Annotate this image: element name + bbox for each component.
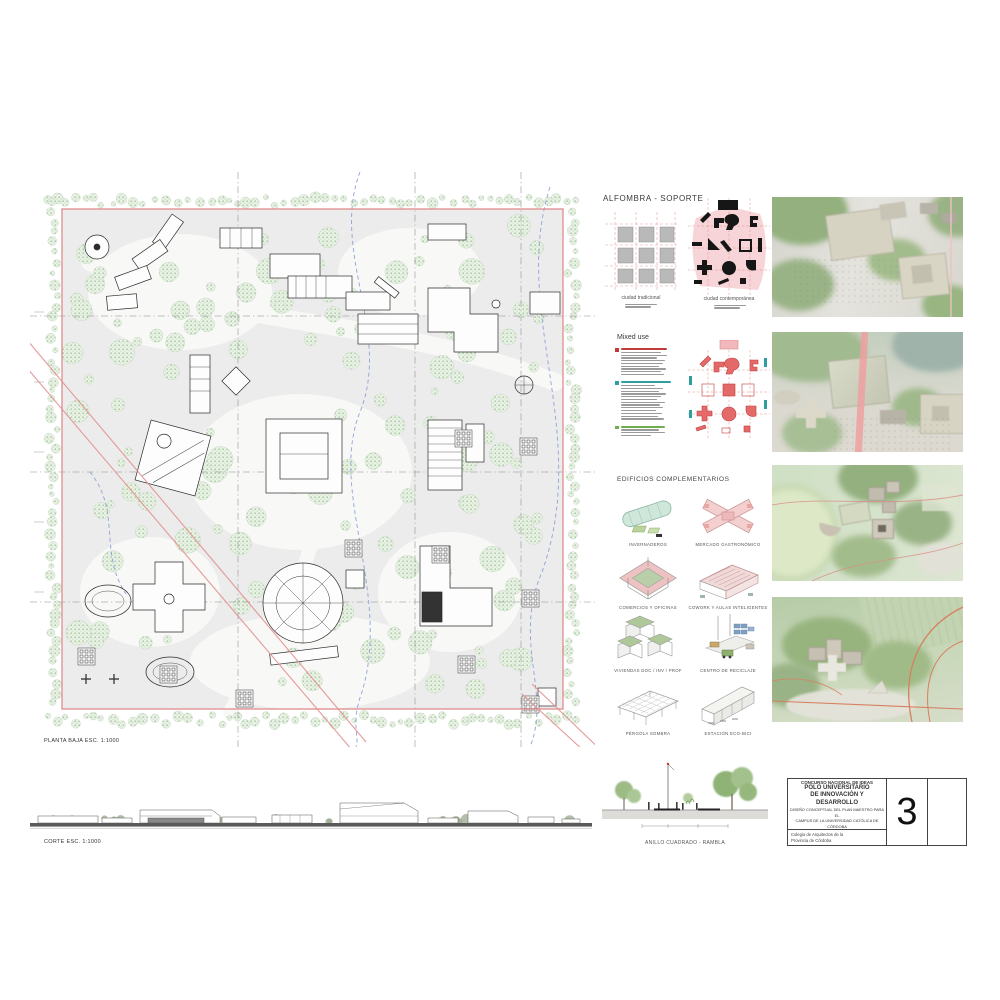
tree-canopy <box>278 678 286 686</box>
tree-canopy <box>462 196 469 203</box>
complementario-cowork: COWORK Y AULAS INTELIGENTES <box>688 549 768 612</box>
tree-canopy <box>50 593 57 600</box>
tree-canopy <box>47 208 55 216</box>
tree-canopy <box>511 458 521 468</box>
corte-ground <box>30 823 592 827</box>
tree-canopy <box>311 718 321 728</box>
tree-canopy <box>490 443 514 467</box>
tree-canopy <box>336 327 345 336</box>
organizer-line2: Provincia de Córdoba <box>791 838 883 844</box>
tree-canopy <box>477 658 488 669</box>
tree-canopy <box>233 597 250 614</box>
tree-canopy <box>274 301 285 312</box>
tree-canopy <box>84 374 94 384</box>
tree-canopy <box>332 195 339 202</box>
tree-canopy <box>568 584 576 592</box>
tree-canopy <box>500 329 516 345</box>
tree-canopy <box>164 364 180 380</box>
tree-canopy <box>567 561 576 570</box>
tree-canopy <box>569 681 575 687</box>
render-paths <box>772 597 963 722</box>
tree-canopy <box>47 517 57 527</box>
render-building <box>806 398 816 428</box>
complementario-viviendas: VIVIENDAS DOC / INV / PROF <box>608 612 688 675</box>
pavilion <box>522 696 539 713</box>
tree-canopy <box>572 543 578 549</box>
tree-canopy <box>229 532 251 554</box>
tree-canopy <box>563 669 571 677</box>
pavilion <box>345 540 362 557</box>
pavilion <box>78 648 95 665</box>
tree-canopy <box>569 258 580 269</box>
tree-canopy <box>52 583 62 593</box>
competition-line3: DE INNOVACIÓN Y DESARROLLO <box>790 792 884 807</box>
tree-canopy <box>565 425 575 435</box>
tree-canopy <box>479 196 484 201</box>
tree-canopy <box>504 194 514 204</box>
tree-canopy <box>113 319 121 327</box>
tree-canopy <box>390 722 396 728</box>
tree-canopy <box>111 201 116 206</box>
tree-canopy <box>568 530 577 539</box>
tree-canopy <box>341 521 351 531</box>
tree-canopy <box>318 227 338 247</box>
tree-canopy <box>209 198 217 206</box>
corte-buildings <box>38 803 580 823</box>
pergola-icon <box>614 679 682 729</box>
tree-canopy <box>46 333 56 343</box>
tree-canopy <box>163 635 171 643</box>
legend-green-swatch <box>615 426 619 430</box>
tree-canopy <box>526 194 532 200</box>
tree-canopy <box>569 237 577 245</box>
tree-canopy <box>567 347 574 354</box>
tree-canopy <box>361 198 368 205</box>
tree-canopy <box>45 461 56 472</box>
tree-canopy <box>66 620 91 645</box>
tree-canopy <box>563 690 572 699</box>
tree-canopy <box>118 721 126 729</box>
tree-canopy <box>48 509 56 517</box>
tree-canopy <box>438 712 446 720</box>
tree-canopy <box>425 674 444 693</box>
tree-canopy <box>171 301 190 320</box>
tree-canopy <box>241 719 251 729</box>
tree-canopy <box>374 394 387 407</box>
tree-canopy <box>573 197 579 203</box>
tree-canopy <box>370 717 377 724</box>
tree-canopy <box>218 196 227 205</box>
tree-canopy <box>45 412 56 423</box>
tree-canopy <box>174 199 182 207</box>
tree-canopy <box>185 197 191 203</box>
tree-canopy <box>52 326 58 332</box>
tree-canopy <box>415 713 426 724</box>
tree-canopy <box>404 718 413 727</box>
viviendas-icon <box>616 614 680 666</box>
tree-canopy <box>49 387 54 392</box>
corte-section-drawing <box>30 792 592 836</box>
title-block: CONCURSO NACIONAL DE IDEAS POLO UNIVERSI… <box>787 778 967 846</box>
tree-canopy <box>48 198 56 206</box>
tree-canopy <box>415 256 425 266</box>
tree-canopy <box>52 680 61 689</box>
complementario-mercado: MERCADO GASTRONÓMICO <box>688 486 768 549</box>
complementario-ecobici: ESTACIÓN ECO-BICI <box>688 675 768 738</box>
tree-canopy <box>564 324 573 333</box>
tree-canopy <box>89 193 98 202</box>
tree-canopy <box>71 300 92 321</box>
render-building <box>774 390 800 405</box>
board-number: 3 <box>896 791 917 834</box>
tree-canopy <box>199 316 215 332</box>
tree-canopy <box>49 541 58 550</box>
tree-canopy <box>240 197 251 208</box>
tree-canopy <box>388 627 401 640</box>
tree-canopy <box>61 342 83 364</box>
tree-canopy <box>47 454 53 460</box>
tree-canopy <box>51 219 59 227</box>
legend-teal-swatch <box>615 381 619 385</box>
tree-canopy <box>480 546 506 572</box>
tree-canopy <box>564 269 572 277</box>
board-number-cell: 3 <box>887 779 928 845</box>
mixed-use-diagram <box>688 340 770 440</box>
tree-canopy <box>48 359 55 366</box>
tree-canopy <box>507 214 530 237</box>
competition-title: CONCURSO NACIONAL DE IDEAS POLO UNIVERSI… <box>788 779 886 830</box>
tree-canopy <box>49 668 58 677</box>
tree-canopy <box>530 241 544 255</box>
tree-canopy <box>51 689 62 700</box>
complementario-invernaderos: INVERNADEROS <box>608 486 688 549</box>
alfombra-left-caption: ciudad tradicional <box>600 295 682 301</box>
tree-canopy <box>225 312 240 327</box>
tree-canopy <box>562 711 572 721</box>
tree-canopy <box>197 720 204 727</box>
tree-canopy <box>48 237 57 246</box>
cowork-icon <box>694 553 762 603</box>
tree-canopy <box>53 347 59 353</box>
tree-canopy <box>83 195 89 201</box>
tree-canopy <box>325 306 341 322</box>
tree-canopy <box>271 202 278 209</box>
tree-canopy <box>49 657 57 665</box>
tree-canopy <box>513 719 522 728</box>
tree-canopy <box>116 193 127 204</box>
tree-canopy <box>48 484 53 489</box>
tree-canopy <box>139 636 152 649</box>
tree-canopy <box>566 366 575 375</box>
tree-canopy <box>468 714 477 723</box>
complementarios-grid: INVERNADEROS MERCADO GASTRONÓMICO <box>608 486 768 738</box>
tree-canopy <box>50 271 55 276</box>
tree-canopy <box>235 201 241 207</box>
alfombra-left-subtext <box>625 302 657 308</box>
tree-canopy <box>117 459 125 467</box>
tree-canopy <box>49 563 54 568</box>
tree-canopy <box>396 556 419 579</box>
tree-canopy <box>53 260 61 268</box>
tree-canopy <box>571 508 580 517</box>
tree-canopy <box>304 333 317 346</box>
tree-canopy <box>385 261 408 284</box>
tree-canopy <box>491 394 509 412</box>
tree-canopy <box>499 649 517 667</box>
render-people-speckle <box>792 257 902 307</box>
tree-canopy <box>184 318 200 334</box>
tree-canopy <box>53 498 59 504</box>
reciclaje-icon <box>696 614 760 666</box>
tree-canopy <box>378 537 393 552</box>
tree-canopy <box>262 712 269 719</box>
tree-canopy <box>565 200 570 205</box>
corte-scale-label: CORTE ESC. 1:1000 <box>44 839 101 845</box>
tree-canopy <box>72 193 81 202</box>
tree-canopy <box>396 200 405 209</box>
tree-canopy <box>44 529 55 540</box>
tree-canopy <box>49 492 54 497</box>
aerial-render-3 <box>772 465 963 581</box>
tree-canopy <box>566 473 574 481</box>
tree-canopy <box>534 198 544 208</box>
tree-canopy <box>370 195 377 202</box>
tree-canopy <box>398 719 403 724</box>
tree-canopy <box>159 262 179 282</box>
alfombra-right-caption: ciudad contemporánea <box>688 296 770 302</box>
tree-canopy <box>427 198 438 209</box>
tree-canopy <box>574 293 580 299</box>
tree-canopy <box>573 519 579 525</box>
tree-canopy <box>109 339 135 365</box>
tree-canopy <box>569 452 580 463</box>
tree-canopy <box>343 352 360 369</box>
tree-canopy <box>361 639 385 663</box>
tree-canopy <box>209 712 216 719</box>
tree-canopy <box>572 619 580 627</box>
pavilion <box>522 590 539 607</box>
tree-canopy <box>430 355 454 379</box>
tree-canopy <box>568 491 574 497</box>
mercado-icon <box>696 494 760 540</box>
tree-canopy <box>300 712 308 720</box>
tree-canopy <box>551 715 561 725</box>
title-block-empty-cell <box>928 779 966 845</box>
tree-canopy <box>567 336 573 342</box>
tree-canopy <box>124 448 132 456</box>
tree-canopy <box>569 463 575 469</box>
alfombra-shapes-diagram <box>688 198 770 296</box>
tree-canopy <box>573 249 578 254</box>
tree-canopy <box>466 679 485 698</box>
tree-canopy <box>263 195 268 200</box>
tree-canopy <box>48 378 58 388</box>
tree-canopy <box>572 716 579 723</box>
tree-canopy <box>451 371 464 384</box>
tree-canopy <box>161 196 170 205</box>
tree-canopy <box>405 200 412 207</box>
tree-canopy <box>488 717 494 723</box>
tree-canopy <box>250 717 259 726</box>
tree-canopy <box>71 719 80 728</box>
tree-canopy <box>506 578 523 595</box>
tree-canopy <box>417 195 425 203</box>
tree-canopy <box>459 259 485 285</box>
tree-canopy <box>49 645 60 656</box>
tree-canopy <box>469 200 477 208</box>
tree-canopy <box>565 638 572 645</box>
tree-canopy <box>570 571 578 579</box>
tree-canopy <box>571 280 582 291</box>
tree-canopy <box>389 198 396 205</box>
site-plan-drawing <box>30 172 595 747</box>
aerial-render-1 <box>772 197 963 317</box>
tree-canopy <box>310 192 321 203</box>
tree-canopy <box>151 714 160 723</box>
tree-canopy <box>475 646 483 654</box>
aerial-render-4 <box>772 597 963 722</box>
street-section-caption: ANILLO CUADRADO - RAMBLA <box>602 840 768 846</box>
tree-canopy <box>526 713 532 719</box>
tree-canopy <box>428 630 437 639</box>
tree-canopy <box>570 434 579 443</box>
render-paths <box>772 465 963 581</box>
tree-canopy <box>504 720 514 730</box>
tree-canopy <box>45 570 55 580</box>
complementario-comercios: COMERCIOS Y OFICINAS <box>608 549 688 612</box>
tree-canopy <box>385 416 405 436</box>
tree-canopy <box>431 388 438 395</box>
tree-canopy <box>62 714 68 720</box>
tree-canopy <box>568 552 578 562</box>
tree-canopy <box>477 714 485 722</box>
tree-canopy <box>546 712 552 718</box>
tree-canopy <box>570 592 579 601</box>
tree-canopy <box>61 198 69 206</box>
alfombra-grid-diagram <box>605 212 677 292</box>
tree-canopy <box>449 719 459 729</box>
tree-canopy <box>128 717 137 726</box>
tree-canopy <box>250 198 259 207</box>
tree-canopy <box>49 472 58 481</box>
tree-canopy <box>568 208 576 216</box>
street-section-drawing <box>602 760 768 838</box>
tree-canopy <box>461 494 480 513</box>
tree-canopy <box>570 482 579 491</box>
tree-canopy <box>248 581 265 598</box>
competition-line5: CAMPUS DE LA UNIVERSIDAD CATÓLICA DE CÓR… <box>790 818 884 829</box>
tree-canopy <box>54 293 60 299</box>
tree-canopy <box>166 333 185 352</box>
tree-canopy <box>183 713 193 723</box>
tree-canopy <box>46 552 56 562</box>
comercios-icon <box>616 553 680 603</box>
tree-canopy <box>46 405 54 413</box>
tree-canopy <box>52 636 62 646</box>
tree-canopy <box>44 433 54 443</box>
pavilion <box>520 438 537 455</box>
tree-canopy <box>137 713 148 724</box>
tree-canopy <box>108 714 118 724</box>
tree-canopy <box>567 657 574 664</box>
competition-line4: DISEÑO CONCEPTUAL DEL PLAN MAESTRO PARA … <box>790 807 884 818</box>
tree-canopy <box>365 453 382 470</box>
tree-canopy <box>573 629 579 635</box>
render-building <box>942 213 956 223</box>
tree-canopy <box>514 515 534 535</box>
legend-group-red <box>615 348 687 375</box>
render-people-speckle <box>832 416 952 450</box>
tree-canopy <box>421 235 429 243</box>
tree-canopy <box>551 194 561 204</box>
tree-canopy <box>213 525 222 534</box>
tree-canopy <box>51 228 58 235</box>
tree-canopy <box>98 715 104 721</box>
tree-canopy <box>107 500 115 508</box>
render-courtyard <box>911 264 933 284</box>
tree-canopy <box>196 198 205 207</box>
tree-canopy <box>173 711 184 722</box>
tree-canopy <box>47 629 55 637</box>
tree-canopy <box>572 698 580 706</box>
complementario-pergola: PÉRGOLA SOMBRA <box>608 675 688 738</box>
tree-canopy <box>570 412 581 423</box>
tree-canopy <box>351 200 358 207</box>
mixed-use-legend <box>615 347 687 436</box>
tree-canopy <box>236 283 256 303</box>
tree-canopy <box>49 698 56 705</box>
tree-canopy <box>340 195 346 201</box>
tree-canopy <box>196 298 214 316</box>
tree-canopy <box>98 202 104 208</box>
tree-canopy <box>532 513 543 524</box>
legend-group-teal <box>615 381 687 419</box>
tree-canopy <box>571 303 581 313</box>
tree-canopy <box>450 200 457 207</box>
tree-canopy <box>378 196 385 203</box>
render-pink-road <box>950 197 952 317</box>
aerial-render-2 <box>772 332 963 452</box>
competition-board: { "plan": { "label": "PLANTA BAJA ESC. 1… <box>0 0 1000 1000</box>
tree-canopy <box>565 360 571 366</box>
tree-canopy <box>45 713 51 719</box>
tree-canopy <box>562 645 573 656</box>
tree-canopy <box>488 196 494 202</box>
tree-canopy <box>292 717 299 724</box>
tree-canopy <box>53 717 62 726</box>
tree-canopy <box>359 710 369 720</box>
tree-canopy <box>298 195 309 206</box>
tree-canopy <box>227 715 232 720</box>
alfombra-right-subtext <box>714 303 746 309</box>
tree-canopy <box>206 283 215 292</box>
tree-canopy <box>50 618 60 628</box>
legend-group-green <box>615 426 687 437</box>
pavilion <box>236 690 253 707</box>
ecobici-icon <box>694 679 762 729</box>
tree-canopy <box>428 714 437 723</box>
tree-canopy <box>269 719 280 730</box>
tree-canopy <box>162 720 171 729</box>
legend-red-swatch <box>615 348 619 352</box>
tree-canopy <box>49 280 60 291</box>
tree-canopy <box>302 671 322 691</box>
tree-canopy <box>567 225 578 236</box>
tree-canopy <box>329 718 340 729</box>
tree-canopy <box>573 498 579 504</box>
tree-canopy <box>83 713 89 719</box>
plan-scale-label: PLANTA BAJA ESC. 1:1000 <box>44 738 119 744</box>
